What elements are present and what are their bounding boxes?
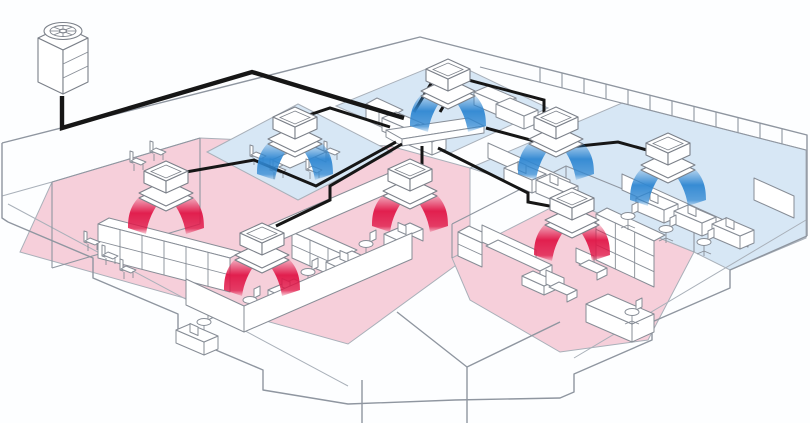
- office-chair-seat: [697, 239, 711, 246]
- office-chair-seat: [659, 226, 673, 233]
- office-chair-seat: [359, 241, 373, 248]
- hvac-isometric-diagram: [0, 0, 810, 423]
- diagram-canvas: [0, 0, 810, 423]
- outdoor-unit: [38, 23, 88, 95]
- office-chair-seat: [621, 213, 635, 220]
- floor-outline: [2, 143, 8, 222]
- fan-hub: [60, 29, 67, 33]
- office-chair-seat: [301, 269, 315, 276]
- office-chair-seat: [197, 319, 211, 326]
- office-chair-seat: [625, 309, 639, 316]
- slab-edge-line: [2, 182, 52, 196]
